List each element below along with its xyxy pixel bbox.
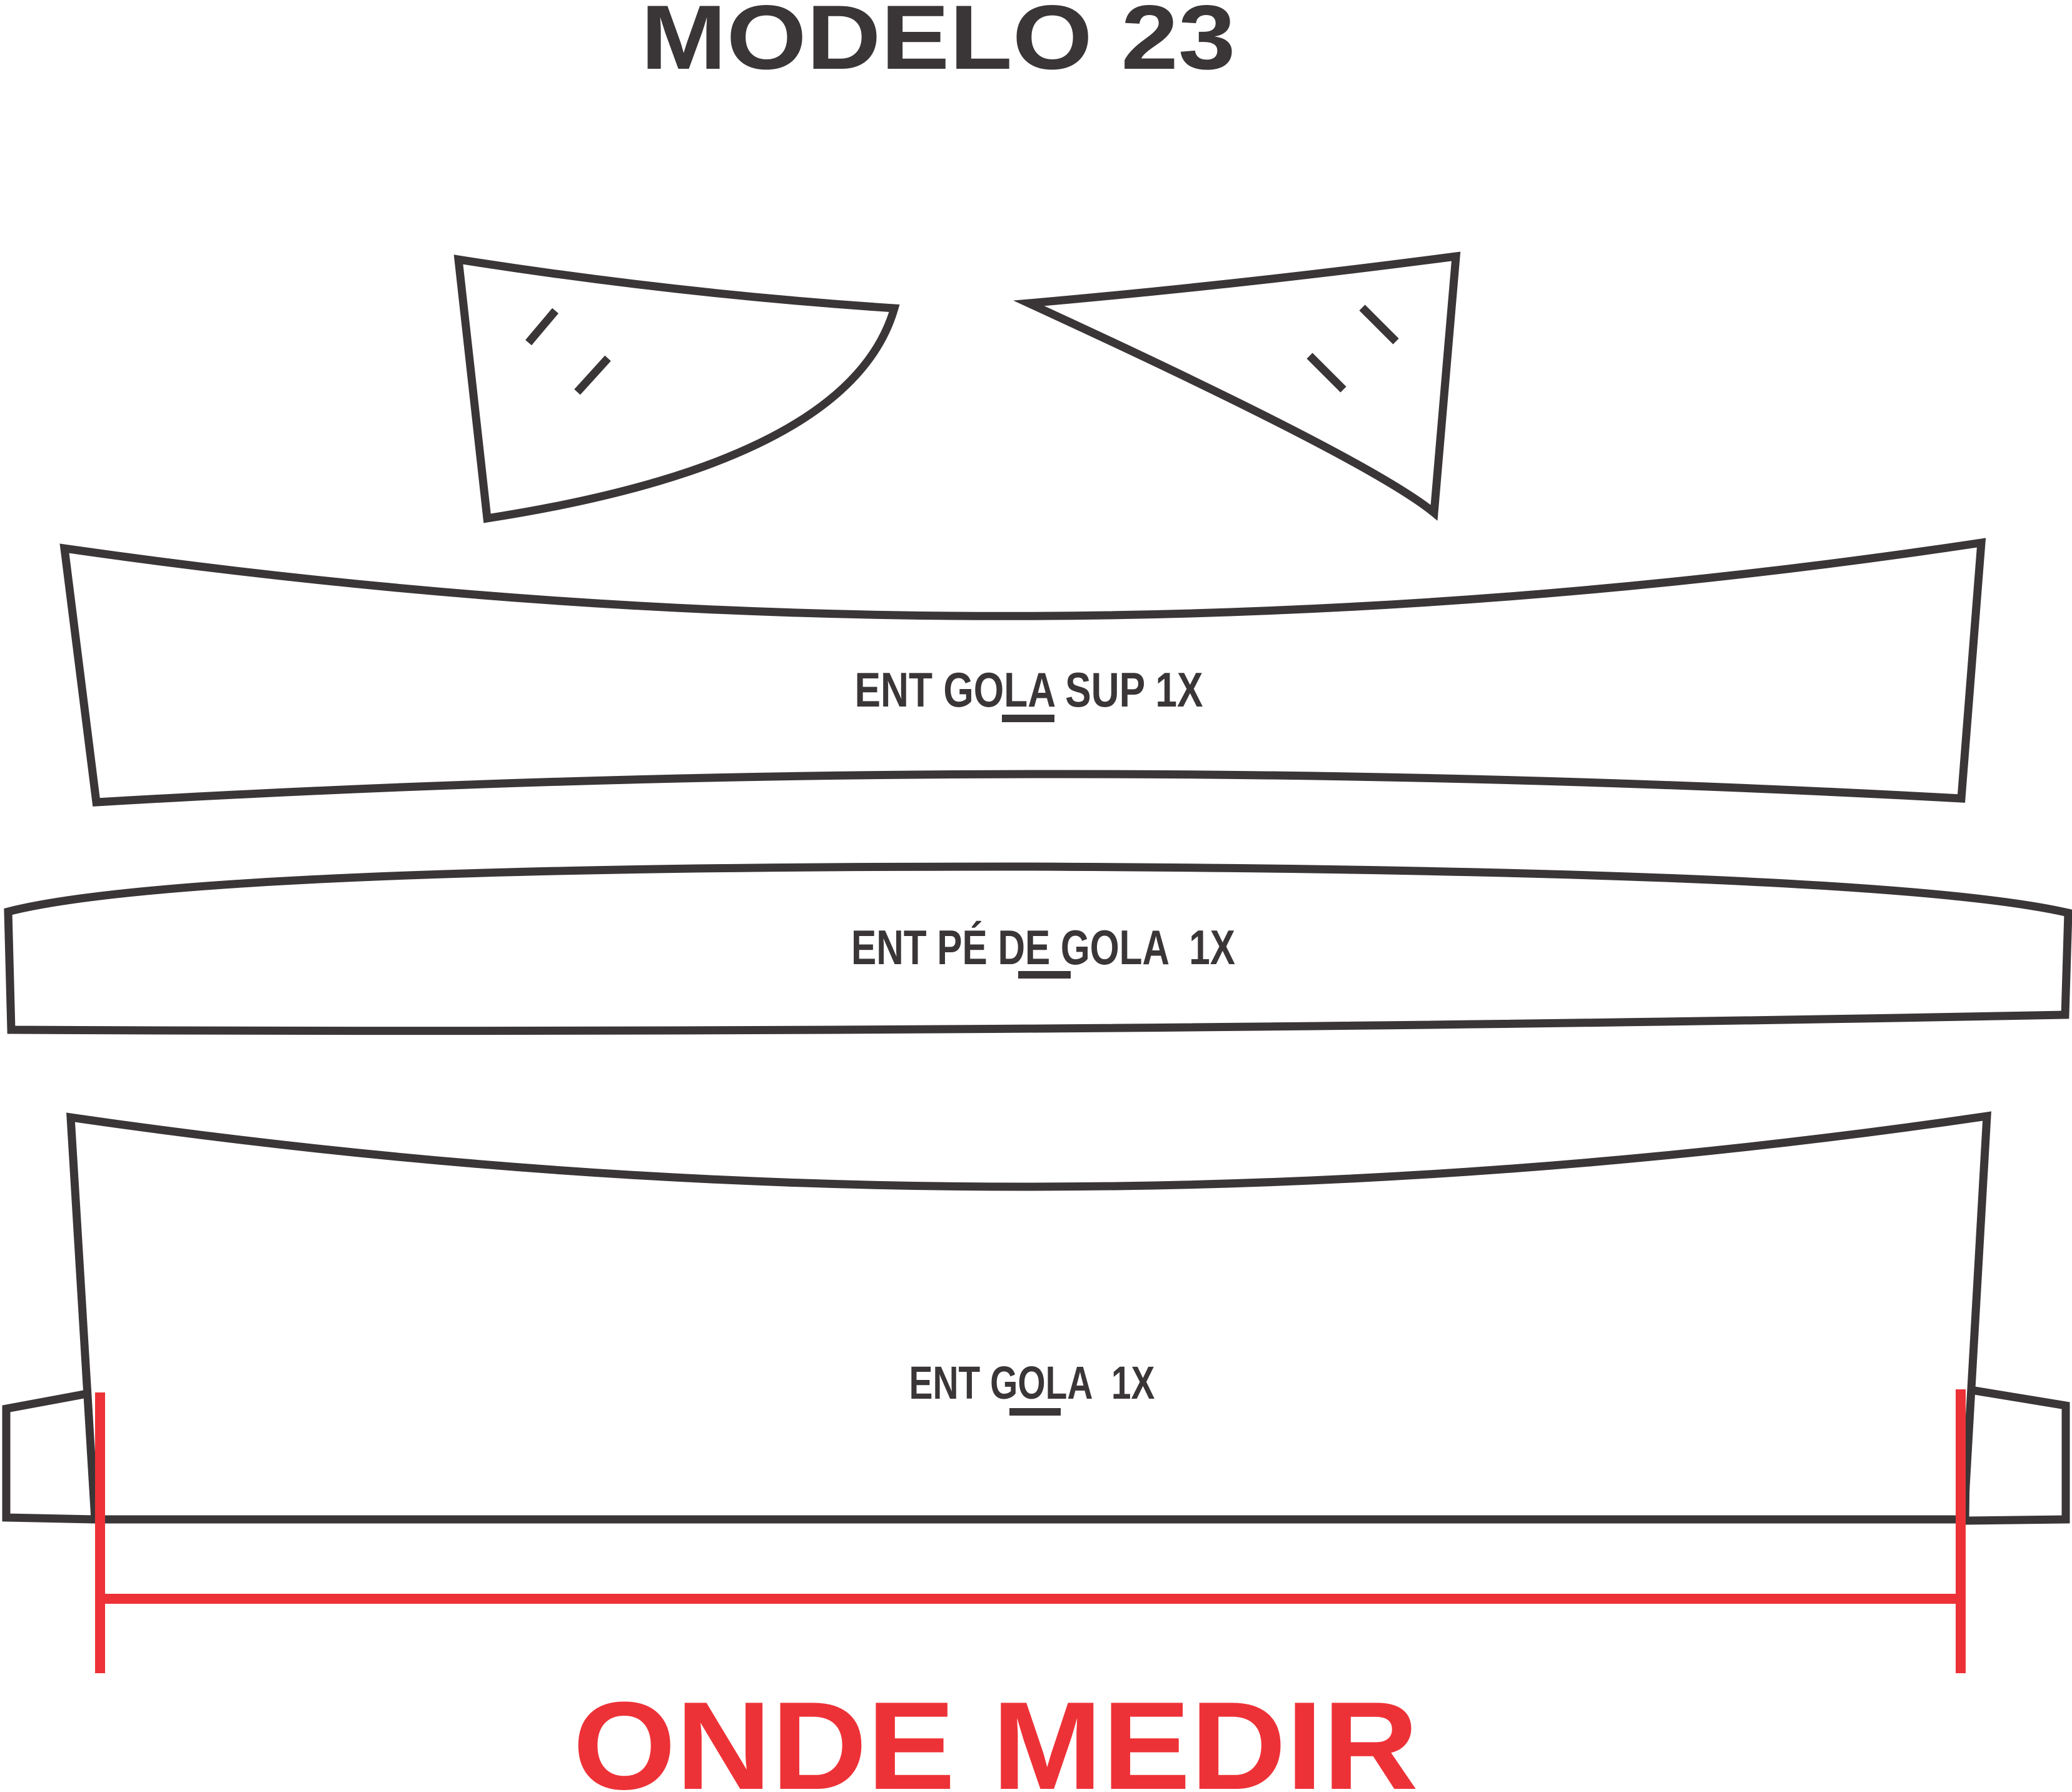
pattern-sheet: MODELO 23 ENT GOLA SUP 1X ENT PÉ DE GOLA… [0, 0, 2072, 1792]
pattern-pieces [6, 256, 2068, 1521]
collar-point-right-piece [1029, 256, 1456, 513]
collar-top-band-underline [1002, 715, 1054, 722]
collar-top-band-label: ENT GOLA SUP 1X [855, 662, 1203, 717]
collar-main-label: ENT GOLA 1X [909, 1357, 1155, 1409]
collar-stand-band-underline [1018, 971, 1071, 979]
collar-main-piece [71, 1116, 1987, 1519]
collar-main-underline [1009, 1408, 1061, 1416]
collar-point-left-piece [458, 259, 894, 518]
tab-left [6, 1392, 95, 1519]
collar-stand-band-label: ENT PÉ DE GOLA 1X [851, 920, 1235, 975]
measure-caption: ONDE MEDIR [573, 1676, 1418, 1792]
tab-right [1965, 1389, 2066, 1521]
page-title: MODELO 23 [641, 0, 1236, 88]
